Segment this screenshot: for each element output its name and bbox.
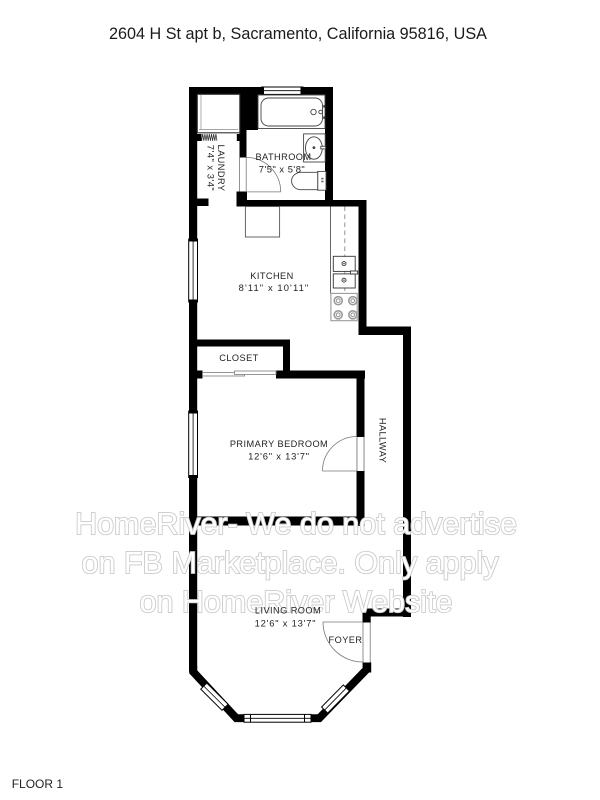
svg-text:HALLWAY: HALLWAY — [378, 418, 388, 463]
svg-text:12'6" x 13'7": 12'6" x 13'7" — [248, 451, 310, 462]
svg-text:HomeRiver- We do not advertise: HomeRiver- We do not advertise — [75, 507, 517, 541]
svg-text:BATHROOM: BATHROOM — [255, 152, 311, 162]
svg-text:KITCHEN: KITCHEN — [250, 271, 293, 281]
svg-text:LIVING ROOM: LIVING ROOM — [255, 606, 321, 616]
svg-text:7'5" x 5'8": 7'5" x 5'8" — [259, 163, 306, 174]
svg-text:on FB Marketplace. Only apply: on FB Marketplace. Only apply — [81, 546, 499, 580]
svg-text:LAUNDRY: LAUNDRY — [216, 145, 226, 192]
svg-text:CLOSET: CLOSET — [219, 353, 258, 363]
svg-text:2604 H St apt b, Sacramento, C: 2604 H St apt b, Sacramento, California … — [109, 25, 487, 43]
svg-text:8'11" x 10'11": 8'11" x 10'11" — [239, 282, 310, 293]
svg-text:12'6" x 13'7": 12'6" x 13'7" — [255, 618, 317, 629]
svg-text:FLOOR 1: FLOOR 1 — [12, 777, 64, 791]
svg-text:FOYER: FOYER — [329, 635, 363, 645]
svg-text:PRIMARY BEDROOM: PRIMARY BEDROOM — [230, 439, 328, 449]
svg-text:7'4" x 3'4": 7'4" x 3'4" — [205, 145, 216, 192]
